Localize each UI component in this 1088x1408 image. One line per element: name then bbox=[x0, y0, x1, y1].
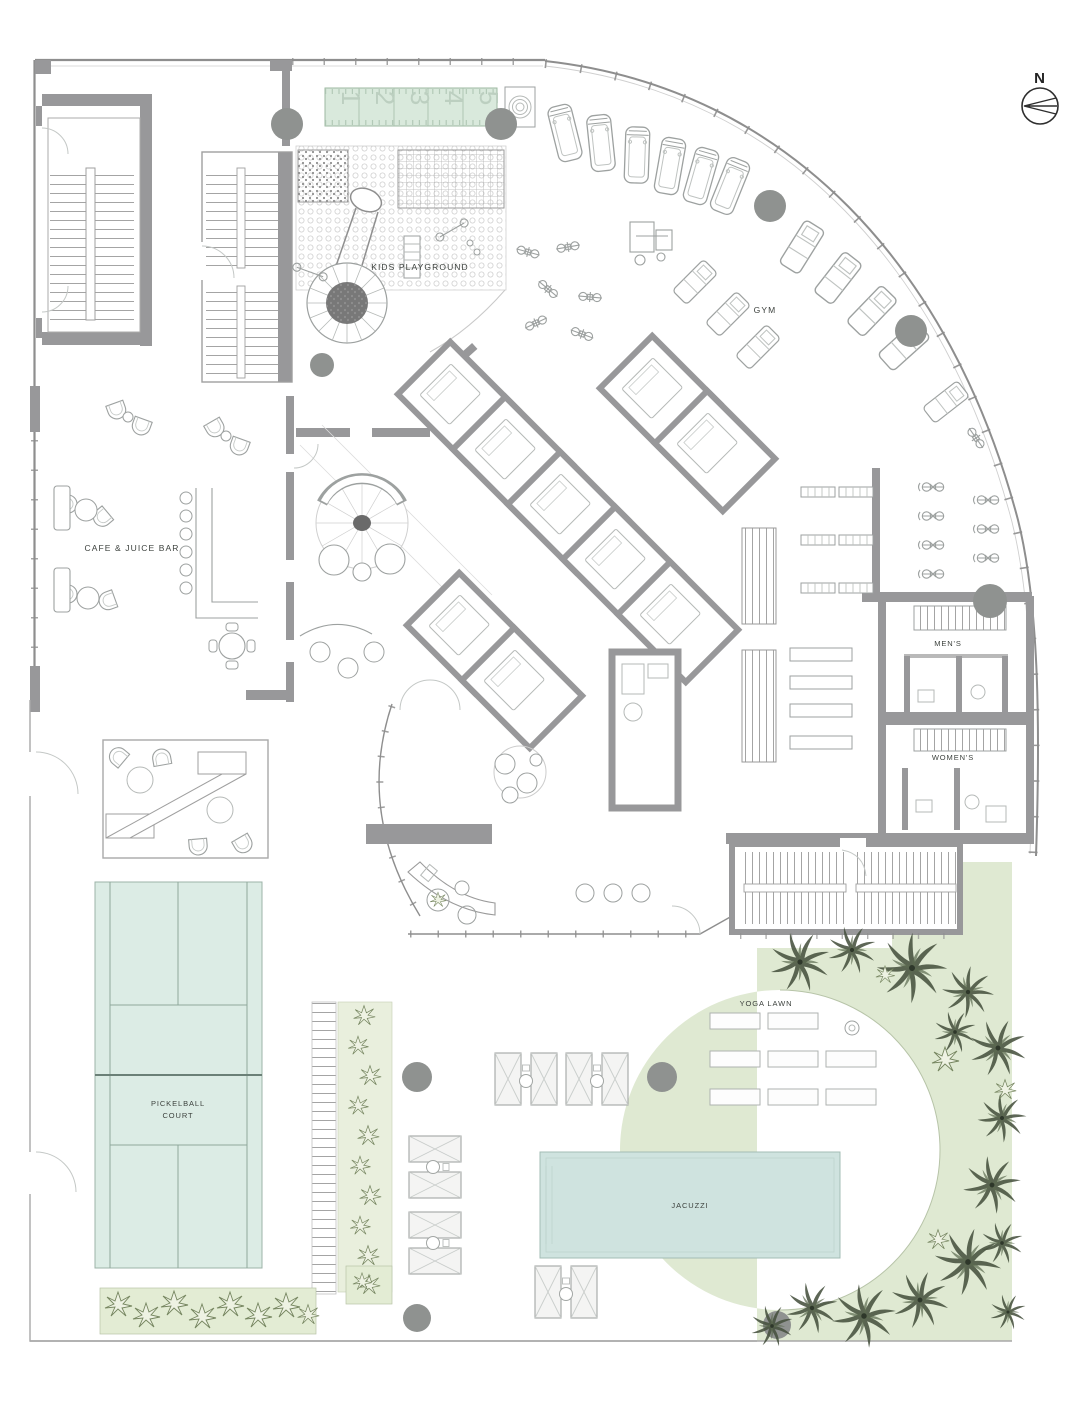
floor-plan: 1 2 3 4 5 bbox=[0, 0, 1088, 1408]
stairwell-northwest bbox=[36, 94, 152, 346]
column bbox=[403, 1304, 431, 1332]
bench-icon bbox=[846, 285, 898, 337]
yoga-mat-icon bbox=[768, 1013, 818, 1029]
bench-icon bbox=[923, 381, 970, 424]
spin-bike-icon bbox=[974, 554, 1000, 562]
pickleball-court bbox=[95, 882, 262, 1268]
dumbbell-rack-icon bbox=[801, 535, 835, 545]
cabana-icon bbox=[409, 1136, 461, 1198]
label-gym: GYM bbox=[754, 305, 777, 315]
yoga-mat-icon bbox=[710, 1013, 760, 1029]
machine-icon bbox=[555, 240, 580, 254]
label-kids-playground: KIDS PLAYGROUND bbox=[371, 262, 469, 272]
track-lane-number: 3 bbox=[405, 91, 435, 105]
north-label: N bbox=[1034, 70, 1046, 87]
sofa bbox=[54, 568, 70, 612]
lounge-chair-icon bbox=[130, 416, 152, 437]
dining-table-icon bbox=[209, 623, 255, 669]
utility-room bbox=[612, 652, 678, 808]
column bbox=[271, 108, 303, 140]
track-lane-number: 1 bbox=[336, 91, 366, 105]
machine-icon bbox=[965, 425, 987, 450]
spin-bike-icon bbox=[919, 541, 945, 549]
yoga-mat-icon bbox=[710, 1089, 760, 1105]
bench-icon bbox=[705, 291, 750, 336]
label-pickelball-line2: COURT bbox=[162, 1111, 193, 1120]
machine-icon bbox=[578, 291, 603, 303]
cabana-icon bbox=[495, 1053, 557, 1105]
cabana-icon bbox=[409, 1212, 461, 1274]
multi-gym-icon bbox=[630, 222, 672, 265]
bench-icon bbox=[672, 259, 717, 304]
label-pickelball-line1: PICKELBALL bbox=[151, 1099, 205, 1108]
dumbbell-rack-icon bbox=[801, 487, 835, 497]
machine-icon bbox=[536, 277, 561, 300]
machine-icon bbox=[515, 244, 541, 260]
lockers-row bbox=[742, 528, 776, 624]
juice-bar-counter bbox=[196, 488, 258, 618]
track-lane-number: 2 bbox=[370, 91, 400, 105]
bar-stools bbox=[180, 492, 192, 594]
dumbbell-rack-icon bbox=[801, 583, 835, 593]
spin-bike-icon bbox=[974, 496, 1000, 504]
yoga-mat-icon bbox=[826, 1051, 876, 1067]
dumbbell-rack-icon bbox=[839, 535, 873, 545]
spin-bike-icon bbox=[919, 512, 945, 520]
label-jacuzzi: JACUZZI bbox=[671, 1201, 708, 1210]
spin-bike-icon bbox=[919, 483, 945, 491]
cafe-lounge bbox=[54, 400, 408, 858]
north-arrow-icon: N bbox=[1022, 70, 1058, 124]
sofa bbox=[54, 486, 70, 530]
label-mens: MEN'S bbox=[934, 639, 962, 648]
lockers-row bbox=[914, 729, 1006, 751]
reception-desk bbox=[408, 862, 495, 915]
treadmill-icon bbox=[586, 114, 616, 172]
track-lane-number: 5 bbox=[474, 91, 504, 105]
yoga-mat-icon bbox=[826, 1089, 876, 1105]
label-womens: WOMEN'S bbox=[932, 753, 974, 762]
lounge-chair-icon bbox=[97, 590, 118, 612]
column bbox=[895, 315, 927, 347]
bench-icon bbox=[735, 324, 780, 369]
column bbox=[647, 1062, 677, 1092]
treadmill-icon bbox=[653, 136, 686, 195]
circular-lounge bbox=[316, 477, 408, 581]
yoga-mat-icon bbox=[768, 1089, 818, 1105]
column bbox=[754, 190, 786, 222]
bench-icon bbox=[779, 219, 825, 274]
track-lane-number: 4 bbox=[439, 91, 469, 105]
yoga-mat-icon bbox=[710, 1051, 760, 1067]
treatment-rooms bbox=[398, 336, 775, 808]
column bbox=[402, 1062, 432, 1092]
column bbox=[973, 584, 1007, 618]
treadmill-icon bbox=[547, 103, 584, 163]
label-cafe-juice-bar: CAFE & JUICE BAR bbox=[84, 543, 179, 553]
dumbbell-rack-icon bbox=[839, 583, 873, 593]
cabana-icon bbox=[566, 1053, 628, 1105]
column bbox=[485, 108, 517, 140]
stairwell-north bbox=[198, 152, 292, 382]
machine-icon bbox=[569, 325, 595, 343]
cabana-icon bbox=[535, 1266, 597, 1318]
yoga-mat-icon bbox=[768, 1051, 818, 1067]
hedge-bed bbox=[338, 1002, 392, 1292]
dumbbell-rack-icon bbox=[839, 487, 873, 497]
office-area bbox=[103, 740, 268, 858]
bench-row bbox=[790, 648, 852, 749]
lockers-row bbox=[742, 650, 776, 762]
bench-icon bbox=[813, 251, 862, 305]
treadmill-icon bbox=[624, 127, 650, 184]
lounge-chair-icon bbox=[228, 436, 250, 457]
spin-bike-icon bbox=[919, 570, 945, 578]
machine-icon bbox=[523, 313, 549, 332]
locker-block bbox=[862, 468, 1034, 846]
trellis bbox=[312, 1002, 336, 1294]
label-yoga-lawn: YOGA LAWN bbox=[740, 999, 793, 1008]
spin-bike-icon bbox=[974, 525, 1000, 533]
floor-plan-drawing: 1 2 3 4 5 bbox=[0, 0, 1088, 1408]
